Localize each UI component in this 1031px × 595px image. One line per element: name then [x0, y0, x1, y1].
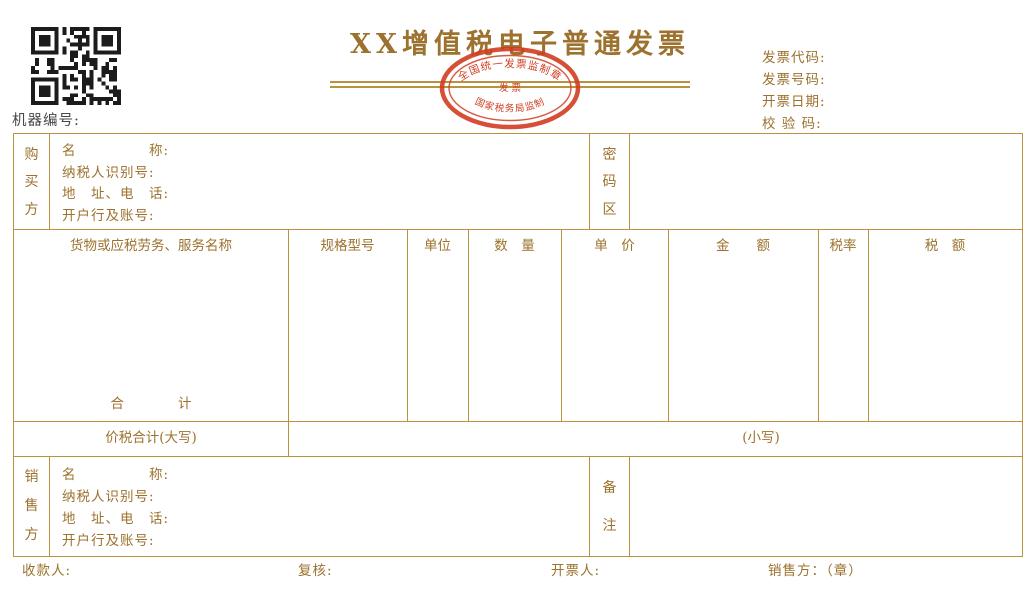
- col-header-qty: 数 量: [468, 234, 561, 252]
- stamp-center-text: 发 票: [499, 82, 522, 94]
- qr-code: [30, 27, 122, 105]
- remark-label: 备 注: [589, 468, 630, 544]
- seller-name-label: 名 称:: [62, 463, 442, 483]
- invoice-table: 购 买 方 名 称: 纳税人识别号: 地 址、电 话: 开户行及账号: 密 码 …: [13, 133, 1023, 557]
- password-area-label: 密 码 区: [589, 140, 630, 223]
- buyer-taxid-label: 纳税人识别号:: [62, 161, 442, 181]
- seller-fields: 名 称: 纳税人识别号: 地 址、电 话: 开户行及账号:: [62, 462, 442, 550]
- col-header-amount: 金 额: [668, 234, 818, 252]
- col-divider-7: [868, 229, 869, 421]
- invoice-code-label: 发票代码:: [762, 46, 826, 68]
- invoice-date-label: 开票日期:: [762, 90, 826, 112]
- invoice-number-label: 发票号码:: [762, 68, 826, 90]
- col-divider-3: [468, 229, 469, 421]
- col-header-item-name: 货物或应税劳务、服务名称: [14, 234, 288, 252]
- password-area-cell: [630, 134, 1022, 229]
- col-header-spec: 规格型号: [288, 234, 407, 252]
- stamp-top-text: 全国统一发票监制章: [456, 57, 565, 84]
- invoice-meta: 发票代码: 发票号码: 开票日期: 校 验 码:: [762, 46, 826, 134]
- check-code-label: 校 验 码:: [762, 112, 826, 134]
- stamp-bottom-text: 国家税务局监制: [473, 95, 547, 114]
- subtotal-divider: [288, 421, 289, 456]
- total-in-words-label: 价税合计(大写): [14, 432, 288, 446]
- buyer-row-bottom-line: [14, 229, 1022, 230]
- seller-bank-label: 开户行及账号:: [62, 529, 442, 549]
- seller-taxid-label: 纳税人识别号:: [62, 485, 442, 505]
- svg-text:国家税务局监制: 国家税务局监制: [473, 95, 547, 114]
- payee-label: 收款人:: [22, 559, 71, 579]
- buyer-name-label: 名 称:: [62, 139, 442, 159]
- buyer-bank-label: 开户行及账号:: [62, 204, 442, 224]
- col-divider-6: [818, 229, 819, 421]
- col-divider-2: [407, 229, 408, 421]
- buyer-fields: 名 称: 纳税人识别号: 地 址、电 话: 开户行及账号:: [62, 138, 442, 225]
- col-divider-1: [288, 229, 289, 421]
- seller-address-label: 地 址、电 话:: [62, 507, 442, 527]
- col-header-unit: 单位: [407, 234, 468, 252]
- items-total-label: 合 计: [14, 398, 288, 412]
- seller-side-label: 销 售 方: [14, 462, 49, 548]
- seller-seal-label: 销售方：（章）: [768, 559, 863, 579]
- checker-label: 复核:: [298, 559, 333, 579]
- total-in-figures-label: (小写): [601, 432, 921, 446]
- buyer-side-divider: [49, 134, 50, 229]
- items-bottom-line: [14, 421, 1022, 422]
- buyer-side-label: 购 买 方: [14, 140, 49, 223]
- col-divider-5: [668, 229, 669, 421]
- col-header-taxrate: 税率: [818, 234, 868, 252]
- drawer-label: 开票人:: [551, 559, 600, 579]
- col-divider-4: [561, 229, 562, 421]
- machine-number-label: 机器编号:: [12, 109, 80, 130]
- col-header-tax: 税 额: [868, 234, 1022, 252]
- invoice-page: XX增值税电子普通发票 全国统一发票监制章 国家税务局监制 发 票 发票代码: …: [0, 0, 1031, 595]
- svg-text:全国统一发票监制章: 全国统一发票监制章: [456, 57, 565, 84]
- buyer-address-label: 地 址、电 话:: [62, 182, 442, 202]
- remark-cell: [630, 456, 1022, 556]
- seller-side-divider: [49, 456, 50, 556]
- supervision-stamp-seal: 全国统一发票监制章 国家税务局监制 发 票: [436, 45, 584, 131]
- col-header-price: 单 价: [561, 234, 668, 252]
